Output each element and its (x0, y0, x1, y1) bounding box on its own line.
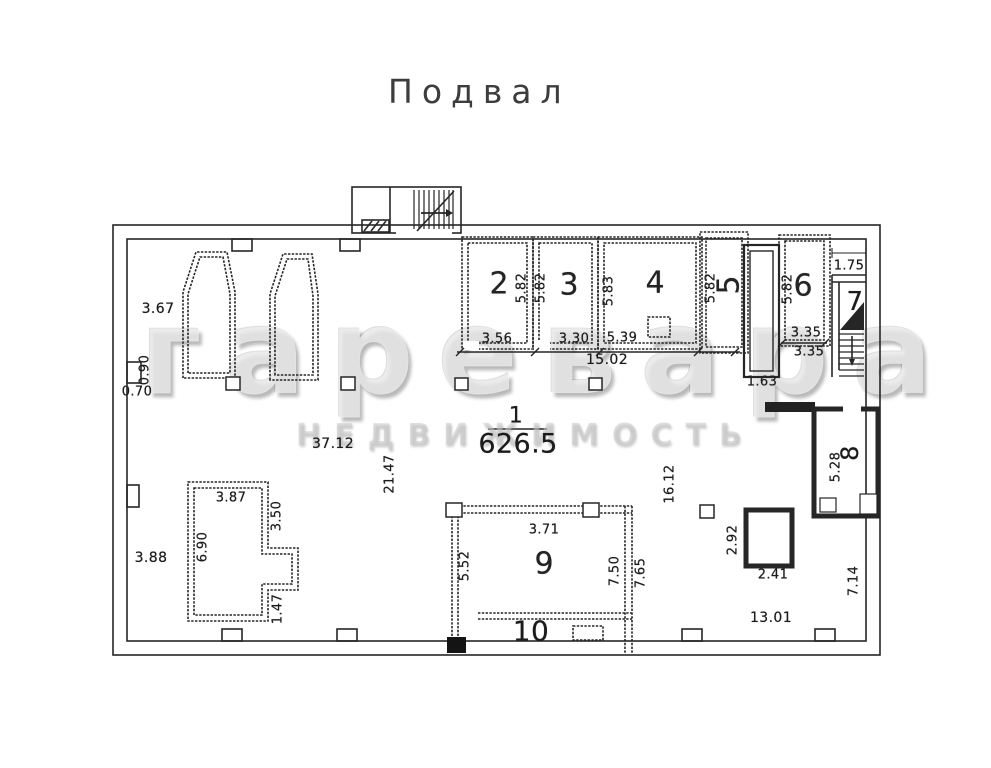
dimension-labels: 3.67 0.90 0.70 3.88 2 5.82 3.56 3 5.82 3… (0, 0, 991, 768)
dim-storeroom-lower-right: 1.47 (271, 594, 286, 625)
hall-area: 626.5 (478, 429, 557, 460)
hall-number: 1 (509, 404, 523, 429)
dim-room4-width: 5.39 (607, 331, 638, 346)
dim-storeroom-width: 3.87 (216, 491, 247, 506)
dim-right-wall: 7.14 (847, 566, 862, 597)
room-6-number: 6 (793, 269, 812, 304)
dim-room3-width: 3.30 (559, 332, 590, 347)
room-10-number: 10 (513, 615, 549, 648)
dim-room6-height: 5.82 (781, 274, 796, 305)
dim-room9-height-inner: 7.50 (608, 556, 623, 587)
floorplan-page: Подвал гаревара (0, 0, 991, 768)
dim-niche-depth: 0.90 (138, 355, 153, 386)
dim-room6-width-inner: 3.35 (791, 326, 822, 341)
dim-room6-width-outer: 3.35 (794, 345, 825, 360)
dim-niche-width: 0.70 (122, 385, 153, 400)
dim-left-top: 3.67 (142, 301, 175, 317)
dim-top-span: 15.02 (586, 352, 628, 368)
dim-room4-height: 5.83 (602, 276, 617, 307)
dim-hall-height-left: 21.47 (383, 454, 398, 493)
dim-shaft-width: 1.63 (747, 375, 778, 390)
dim-hall-height-right: 16.12 (663, 464, 678, 503)
room-3-number: 3 (559, 268, 578, 303)
dim-room7-niche: 1.75 (834, 259, 865, 274)
dim-hall-width: 37.12 (312, 436, 354, 452)
dim-pillar-width: 2.41 (758, 568, 789, 583)
dim-storeroom-upper-right: 3.50 (270, 501, 285, 532)
dim-room2-width: 3.56 (482, 332, 513, 347)
room-7-number: 7 (847, 287, 864, 317)
dim-room8-height: 5.28 (829, 452, 844, 483)
dim-room3-height: 5.82 (534, 273, 549, 304)
dim-room9-width: 3.71 (529, 523, 560, 538)
dim-bottom-span: 13.01 (750, 610, 792, 626)
dim-left-bottom: 3.88 (135, 550, 168, 566)
dim-room5-height: 5.82 (704, 273, 719, 304)
room-4-number: 4 (645, 266, 664, 301)
dim-room9-height-left: 5.52 (458, 551, 473, 582)
dim-room2-height: 5.82 (515, 273, 530, 304)
dim-pillar-height: 2.92 (726, 525, 741, 556)
dim-storeroom-height: 6.90 (196, 532, 211, 563)
room-2-number: 2 (489, 267, 508, 302)
dim-room9-height-outer: 7.65 (634, 558, 649, 589)
room-9-number: 9 (534, 547, 553, 582)
